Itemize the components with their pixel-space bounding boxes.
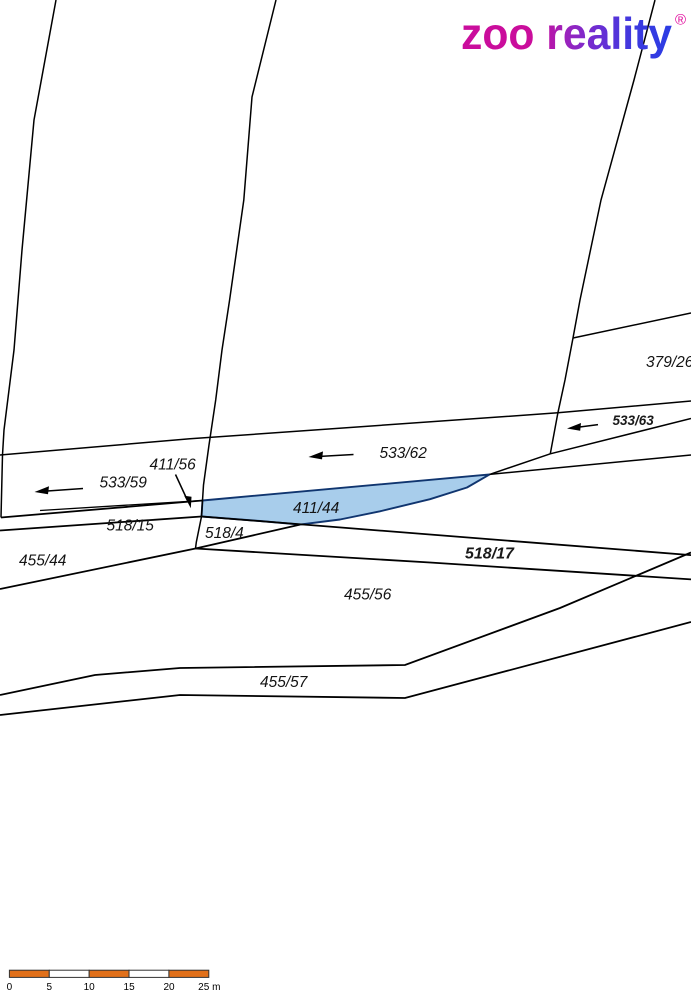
svg-text:25 m: 25 m	[198, 982, 220, 993]
svg-text:0: 0	[7, 982, 13, 993]
svg-text:5: 5	[47, 982, 53, 993]
svg-text:411/44: 411/44	[293, 500, 340, 517]
svg-text:518/4: 518/4	[205, 525, 244, 542]
svg-text:20: 20	[163, 982, 175, 993]
svg-text:533/59: 533/59	[100, 475, 148, 492]
svg-text:411/56: 411/56	[150, 457, 197, 474]
svg-text:533/62: 533/62	[380, 445, 428, 462]
svg-text:518/17: 518/17	[465, 546, 515, 563]
svg-text:zoo reality: zoo reality	[461, 10, 672, 59]
svg-text:533/63: 533/63	[613, 413, 655, 428]
svg-text:15: 15	[124, 982, 136, 993]
svg-text:®: ®	[675, 12, 686, 29]
svg-text:518/15: 518/15	[107, 518, 155, 535]
svg-text:379/26: 379/26	[646, 354, 691, 371]
svg-text:455/56: 455/56	[344, 587, 392, 604]
svg-text:455/44: 455/44	[19, 553, 67, 570]
svg-text:455/57: 455/57	[260, 674, 309, 691]
svg-text:10: 10	[84, 982, 96, 993]
